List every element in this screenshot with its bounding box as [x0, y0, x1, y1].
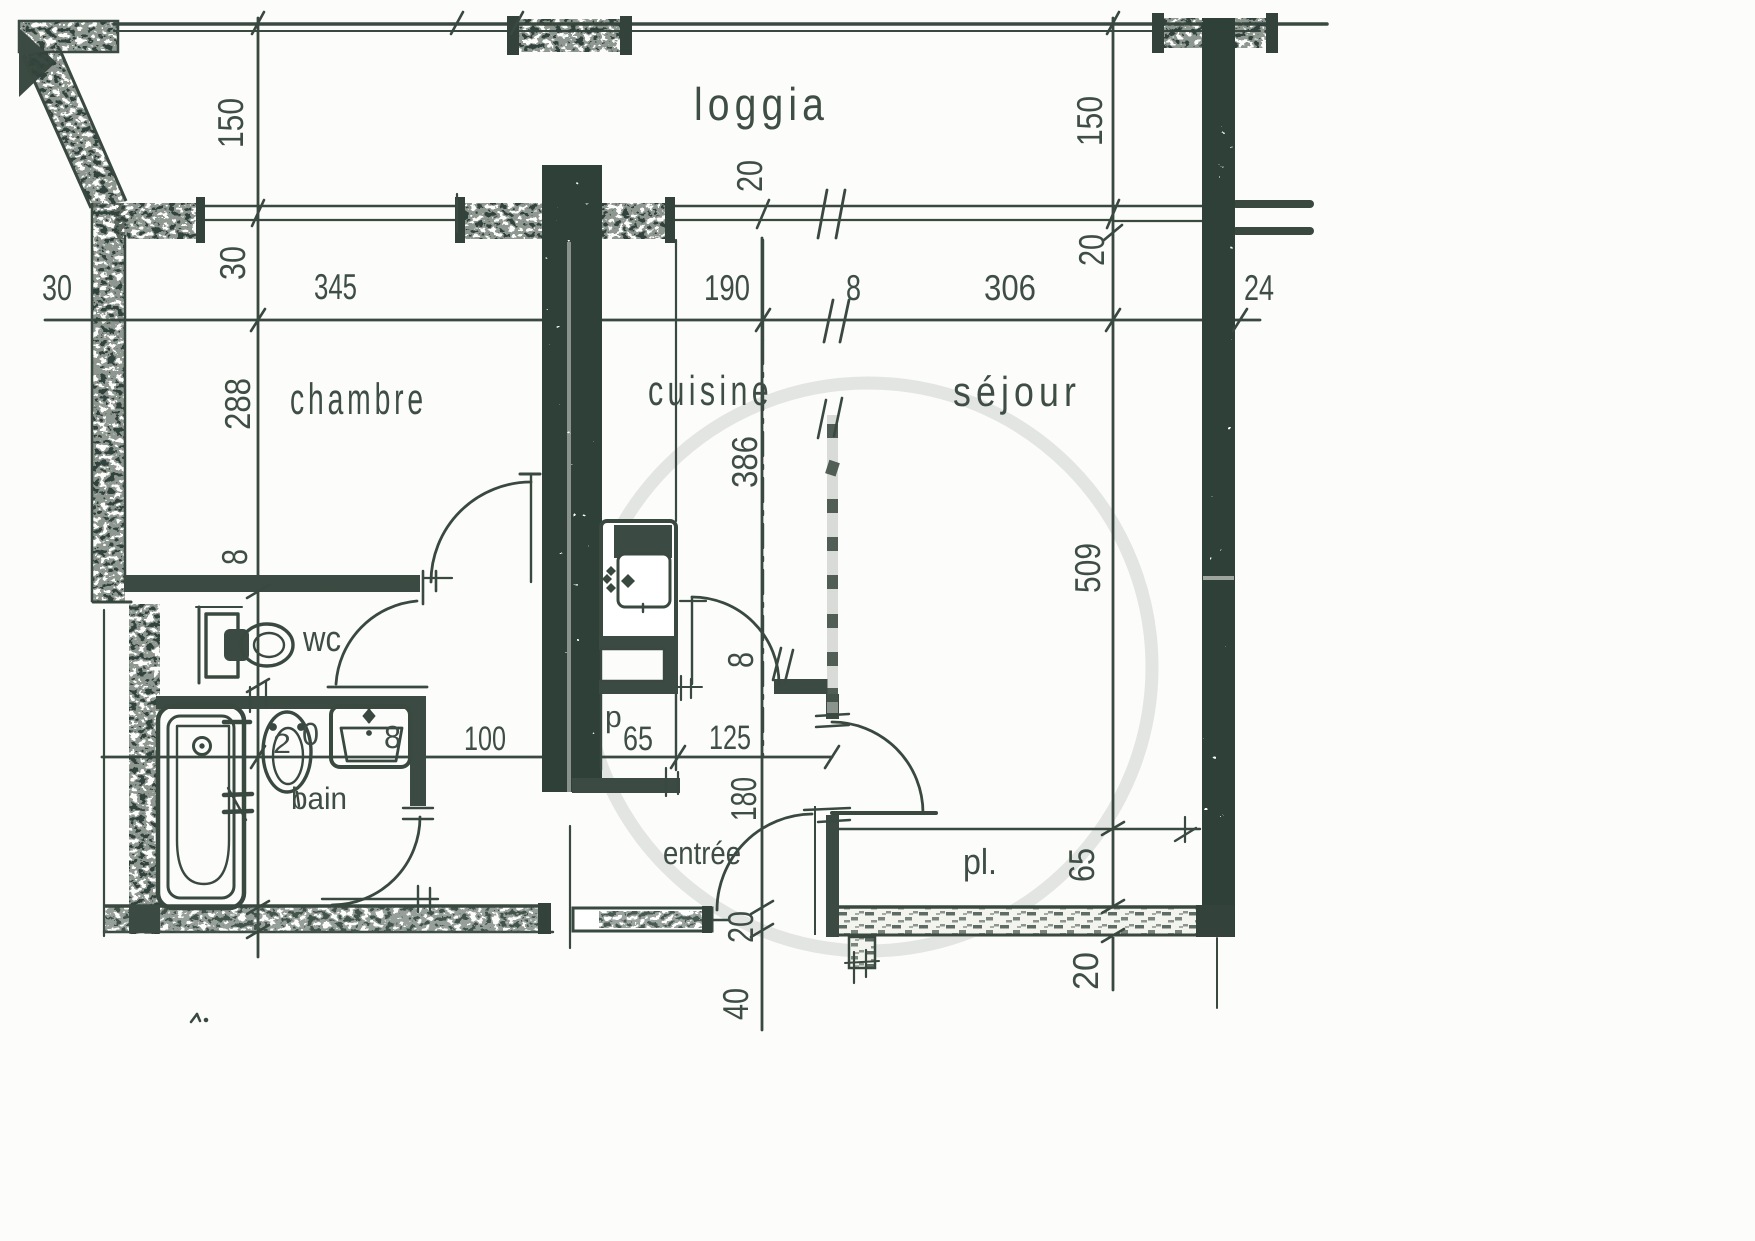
svg-text:8: 8: [384, 719, 401, 755]
svg-text:séjour: séjour: [953, 368, 1081, 415]
svg-text:20: 20: [729, 160, 770, 192]
svg-text:65: 65: [1061, 848, 1102, 882]
svg-text:509: 509: [1067, 543, 1108, 593]
svg-text:345: 345: [314, 266, 357, 307]
svg-text:24: 24: [1244, 267, 1274, 308]
svg-text:pl.: pl.: [963, 841, 997, 882]
svg-text:8: 8: [846, 267, 861, 308]
svg-text:100: 100: [464, 720, 506, 758]
svg-text:125: 125: [709, 719, 751, 757]
svg-text:20: 20: [1065, 952, 1106, 990]
svg-text:306: 306: [984, 267, 1036, 308]
svg-text:150: 150: [1069, 96, 1110, 146]
svg-text:20: 20: [720, 911, 761, 943]
svg-text:30: 30: [42, 267, 72, 308]
svg-text:30: 30: [212, 246, 253, 280]
svg-text:288: 288: [217, 378, 258, 430]
svg-text:p: p: [605, 701, 622, 734]
svg-text:8: 8: [720, 652, 761, 668]
svg-text:150: 150: [210, 98, 251, 148]
svg-text:entrée: entrée: [663, 835, 741, 871]
svg-text:40: 40: [715, 988, 756, 1020]
svg-text:bain: bain: [291, 781, 347, 816]
svg-text:65: 65: [623, 720, 653, 758]
svg-text:190: 190: [704, 267, 750, 308]
svg-text:20: 20: [1071, 234, 1112, 266]
svg-text:chambre: chambre: [290, 375, 427, 424]
svg-text:wc: wc: [302, 618, 341, 659]
svg-text:cuisine: cuisine: [648, 367, 773, 414]
svg-text:386: 386: [724, 436, 765, 488]
svg-text:180: 180: [723, 777, 764, 821]
svg-text:0: 0: [302, 716, 319, 752]
svg-text:8: 8: [214, 549, 255, 565]
svg-text:loggia: loggia: [694, 78, 829, 130]
svg-text:2: 2: [273, 728, 291, 759]
